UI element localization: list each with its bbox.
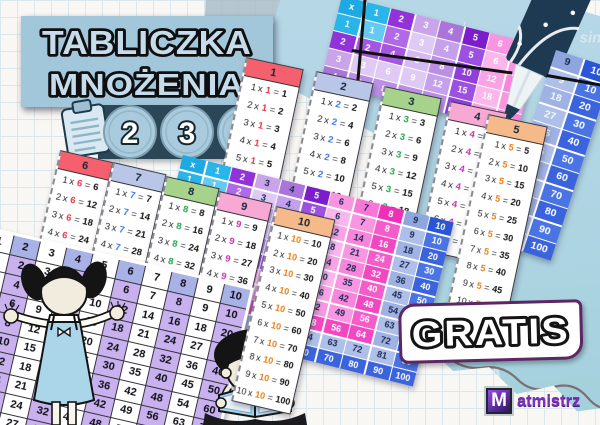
title-line-2: MNOŻENIA (49, 67, 245, 102)
gratis-banner: GRATIS (398, 299, 584, 364)
badge-number: 2 (122, 117, 139, 150)
matmistrz-logo: M atmistrz (484, 386, 580, 416)
title-card: TABLICZKA MNOŻENIA (21, 16, 273, 107)
badge-circle-2: 2 (102, 104, 158, 160)
badge-circle-3: 3 (159, 104, 215, 160)
logo-text: atmistrz (517, 392, 580, 411)
gratis-label: GRATIS (411, 310, 570, 355)
title-text: TABLICZKA MNOŻENIA (21, 16, 273, 107)
girl-illustration (0, 252, 128, 425)
logo-m-icon: M (484, 386, 514, 416)
logo-letter: M (486, 388, 512, 414)
gratis-text: GRATIS (404, 304, 577, 358)
poster-collage: sinx √ x² ∆ 2 A TABLICZKA MNOŻENIA 2 3 (0, 0, 600, 425)
badge-number: 3 (179, 117, 196, 150)
title-line-1: TABLICZKA (42, 24, 252, 61)
